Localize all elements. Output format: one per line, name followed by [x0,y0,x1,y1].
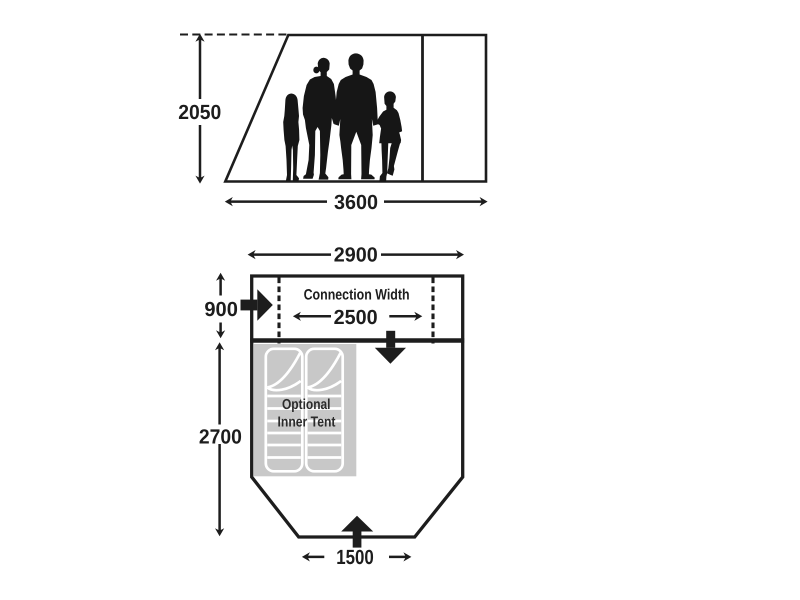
svg-text:2050: 2050 [178,101,221,124]
svg-text:Connection Width: Connection Width [304,287,410,304]
svg-text:900: 900 [204,298,238,321]
svg-text:3600: 3600 [334,191,378,214]
svg-text:2500: 2500 [334,306,378,329]
svg-text:Optional: Optional [282,397,331,413]
svg-text:2900: 2900 [334,243,378,266]
svg-text:1500: 1500 [336,546,374,569]
svg-text:Inner Tent: Inner Tent [278,415,336,431]
svg-text:2700: 2700 [199,425,242,448]
